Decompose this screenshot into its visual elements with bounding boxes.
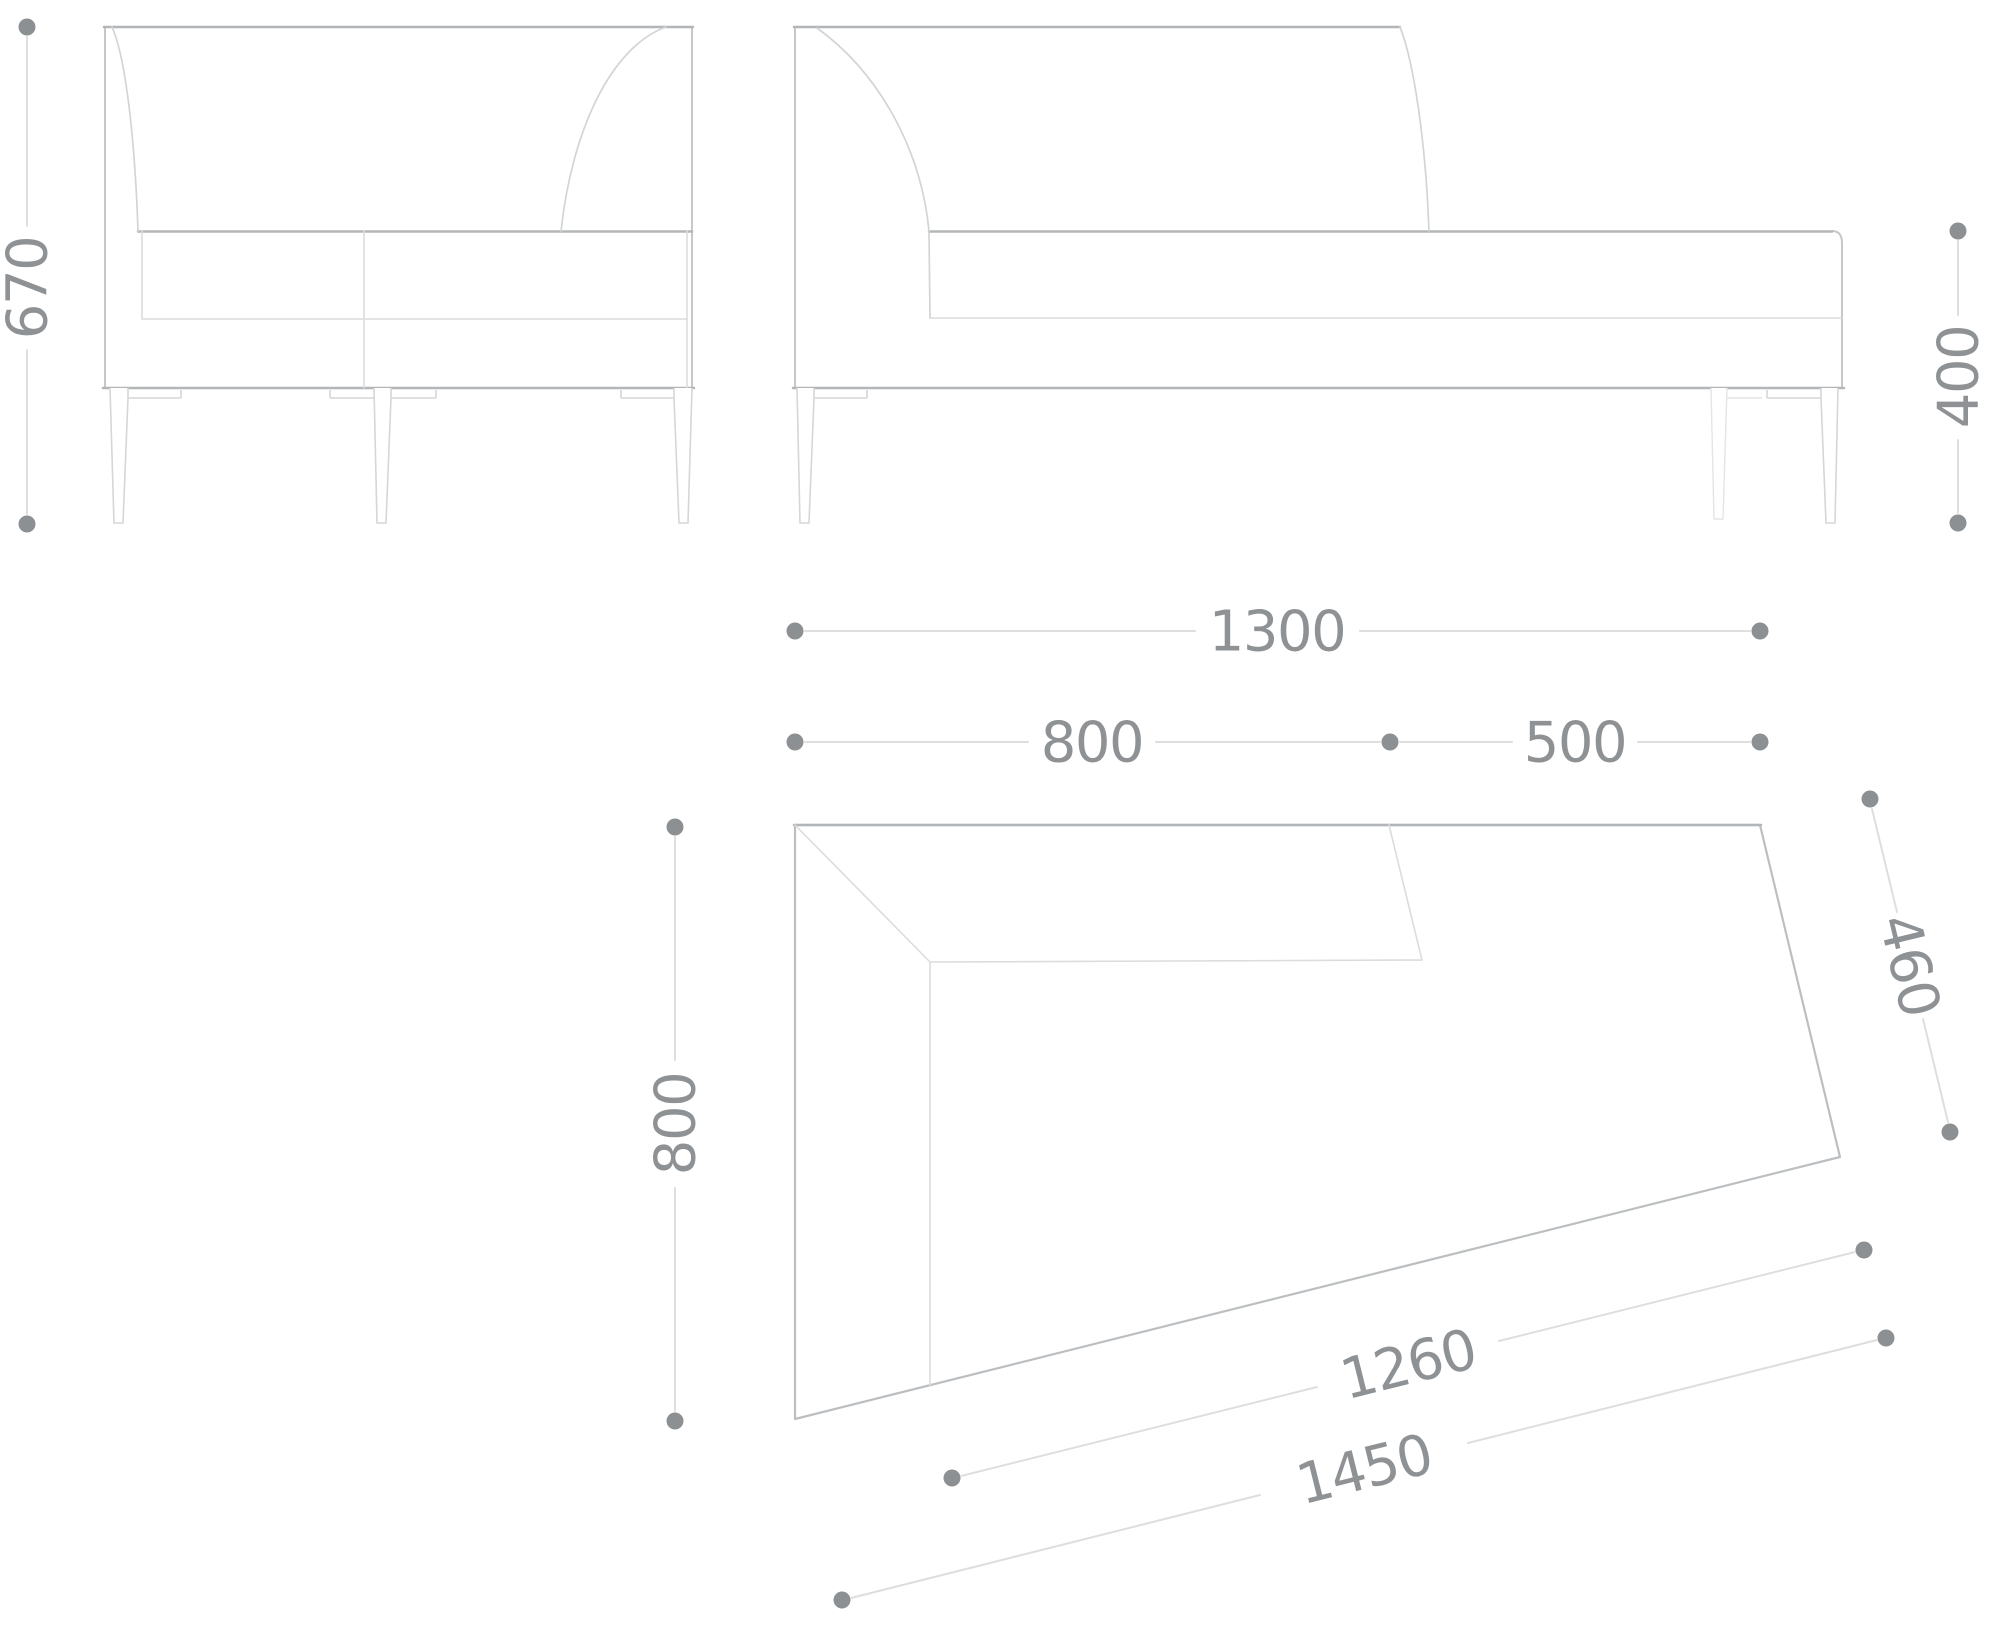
side-elevation-view (103, 27, 694, 523)
dimension-dot (19, 19, 36, 36)
front-elevation-view (793, 27, 1844, 523)
front-view-leg-brackets (814, 390, 1821, 398)
dimension-label-depth: 800 (644, 1073, 709, 1175)
dimension-500: 500 (1400, 711, 1769, 776)
dimension-460: 460 (1862, 791, 1959, 1141)
plan-outline (795, 825, 1840, 1419)
dimension-label-seat-height: 400 (1927, 326, 1992, 428)
side-view-middle-leg (374, 388, 391, 523)
dimension-400: 400 (1927, 223, 1992, 532)
front-view-backrest-front-curve (817, 28, 930, 318)
dimension-800-top: 800 (787, 711, 1399, 776)
dimension-label-overall-width: 1300 (1209, 600, 1346, 665)
front-view-right-edge (1832, 231, 1842, 388)
side-view-edges (105, 27, 692, 388)
dimension-dot (787, 734, 804, 751)
front-view-right-leg (1821, 388, 1838, 523)
dimension-label-backrest-width: 800 (1041, 711, 1143, 776)
dimension-dot (1382, 734, 1399, 751)
dimension-dot (1950, 515, 1967, 532)
front-view-backrest-end-curve (1400, 27, 1429, 231)
dimension-dot (834, 1592, 851, 1609)
technical-drawing-page: 670 400 (0, 0, 2000, 1640)
sofa-dimension-drawing: 670 400 (0, 0, 2000, 1640)
plan-view (794, 825, 1840, 1419)
plan-backrest-lines (795, 825, 1422, 1385)
dimension-dot (1752, 623, 1769, 640)
dimension-800-left: 800 (644, 819, 709, 1430)
dimension-dot (1752, 734, 1769, 751)
dimension-670: 670 (0, 19, 61, 533)
dimension-dot (667, 819, 684, 836)
side-view-right-leg (674, 388, 692, 523)
dimension-dot (1862, 791, 1879, 808)
dimension-label-front-edge: 1450 (1290, 1422, 1438, 1518)
side-view-left-leg (110, 388, 128, 523)
side-view-back-curve-right (561, 27, 666, 231)
dimension-1300: 1300 (787, 600, 1769, 665)
dimension-dot (1950, 223, 1967, 240)
side-view-leg-brackets (128, 390, 674, 398)
front-view-far-leg (1711, 388, 1762, 519)
dimension-dot (787, 623, 804, 640)
dimension-dot (944, 1470, 961, 1487)
dimension-dot (1856, 1242, 1873, 1259)
dimension-dot (667, 1413, 684, 1430)
dimension-label-height: 670 (0, 237, 61, 339)
dimension-dot (19, 516, 36, 533)
dimension-dot (1878, 1330, 1895, 1347)
dimension-label-open-width: 500 (1524, 711, 1626, 776)
dimension-label-right-edge: 460 (1865, 908, 1952, 1023)
dimension-dot (1942, 1124, 1959, 1141)
side-view-cushion-lines (142, 231, 687, 388)
side-view-back-curve-left (112, 27, 138, 231)
front-view-left-leg (797, 388, 814, 523)
dimension-label-seat-front: 1260 (1334, 1317, 1482, 1413)
